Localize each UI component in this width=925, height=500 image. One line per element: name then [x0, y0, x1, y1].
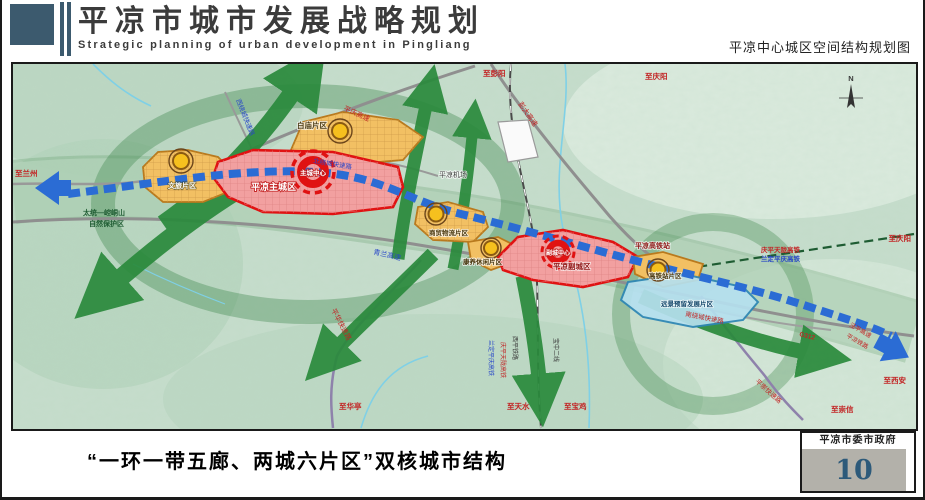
- label-to-lanzhou: 至兰州: [15, 168, 38, 178]
- label-to-qingyang-north: 至庆阳: [645, 71, 668, 81]
- header-bar-1: [60, 2, 64, 56]
- label-landing-pingqing-hsr-v: 兰定平庆高铁: [487, 340, 495, 376]
- authority-label: 平凉市委市政府: [802, 433, 914, 449]
- page-title: 平凉市城市发展战略规划: [78, 6, 485, 38]
- page-number-box: 平凉市委市政府 10: [800, 431, 916, 493]
- header: 平凉市城市发展战略规划 Strategic planning of urban …: [2, 0, 923, 62]
- compass-n-label: N: [848, 74, 853, 83]
- label-xiping-railway: 西平铁路: [511, 336, 519, 360]
- header-bar-2: [67, 2, 71, 56]
- label-nature-reserve-1: 太统—崆峒山: [83, 208, 125, 217]
- label-to-xian: 至西安: [884, 375, 907, 385]
- label-airport: 平凉机场: [439, 170, 467, 179]
- structure-caption: “一环一带五廊、两城六片区”双核城市结构: [87, 445, 507, 474]
- label-qingping-tianlong-hsr-v: 庆平天陇高铁: [499, 342, 507, 378]
- planning-map: 至兰州 西绕城快速路 平庆高速 北绕城快速路 彭大高速 至彭阳 至庆阳 白庙片区…: [11, 62, 918, 431]
- label-to-chongxin: 至崇信: [831, 404, 854, 414]
- label-sub-city: 平凉副城区: [553, 261, 591, 271]
- label-qingping-tianlong-hsr: 庆平天陇高铁: [760, 245, 801, 254]
- label-hsr-district: 高铁站片区: [649, 271, 682, 280]
- label-to-qingyang-east: 至庆阳: [889, 233, 912, 243]
- planning-document-page: 平凉市城市发展战略规划 Strategic planning of urban …: [0, 0, 925, 500]
- map-svg: 至兰州 西绕城快速路 平庆高速 北绕城快速路 彭大高速 至彭阳 至庆阳 白庙片区…: [13, 64, 916, 429]
- label-hsr-station: 平凉高铁站: [635, 241, 670, 250]
- brand-square: [10, 4, 54, 45]
- label-leisure-district: 康养休闲片区: [463, 257, 503, 266]
- label-reserve-district: 远景预留发展片区: [661, 299, 714, 308]
- map-caption: 平凉中心城区空间结构规划图: [729, 37, 911, 56]
- title-block: 平凉市城市发展战略规划 Strategic planning of urban …: [78, 6, 485, 51]
- label-baozhong-line2: 宝中二线: [552, 338, 560, 362]
- page-number: 10: [802, 449, 906, 491]
- label-to-tianshui: 至天水: [507, 401, 530, 411]
- page-subtitle: Strategic planning of urban development …: [78, 39, 485, 51]
- label-trade-logistics: 商贸物流片区: [429, 228, 469, 237]
- label-to-baoji: 至宝鸡: [564, 401, 587, 411]
- label-to-huating: 至华亭: [339, 401, 362, 411]
- label-nature-reserve-2: 自然保护区: [89, 219, 124, 228]
- label-landing-pingqing-hsr: 兰定平庆高铁: [761, 254, 801, 263]
- label-wenlv-district: 文旅片区: [168, 181, 196, 190]
- label-sub-center: 副城中心: [546, 249, 570, 257]
- label-main-city: 平凉主城区: [251, 181, 296, 192]
- footer: “一环一带五廊、两城六片区”双核城市结构 平凉市委市政府 10: [2, 431, 923, 497]
- label-main-center: 主城中心: [300, 168, 327, 177]
- label-baimiao-district: 白庙片区: [297, 120, 327, 130]
- label-to-pengyang: 至彭阳: [483, 68, 506, 78]
